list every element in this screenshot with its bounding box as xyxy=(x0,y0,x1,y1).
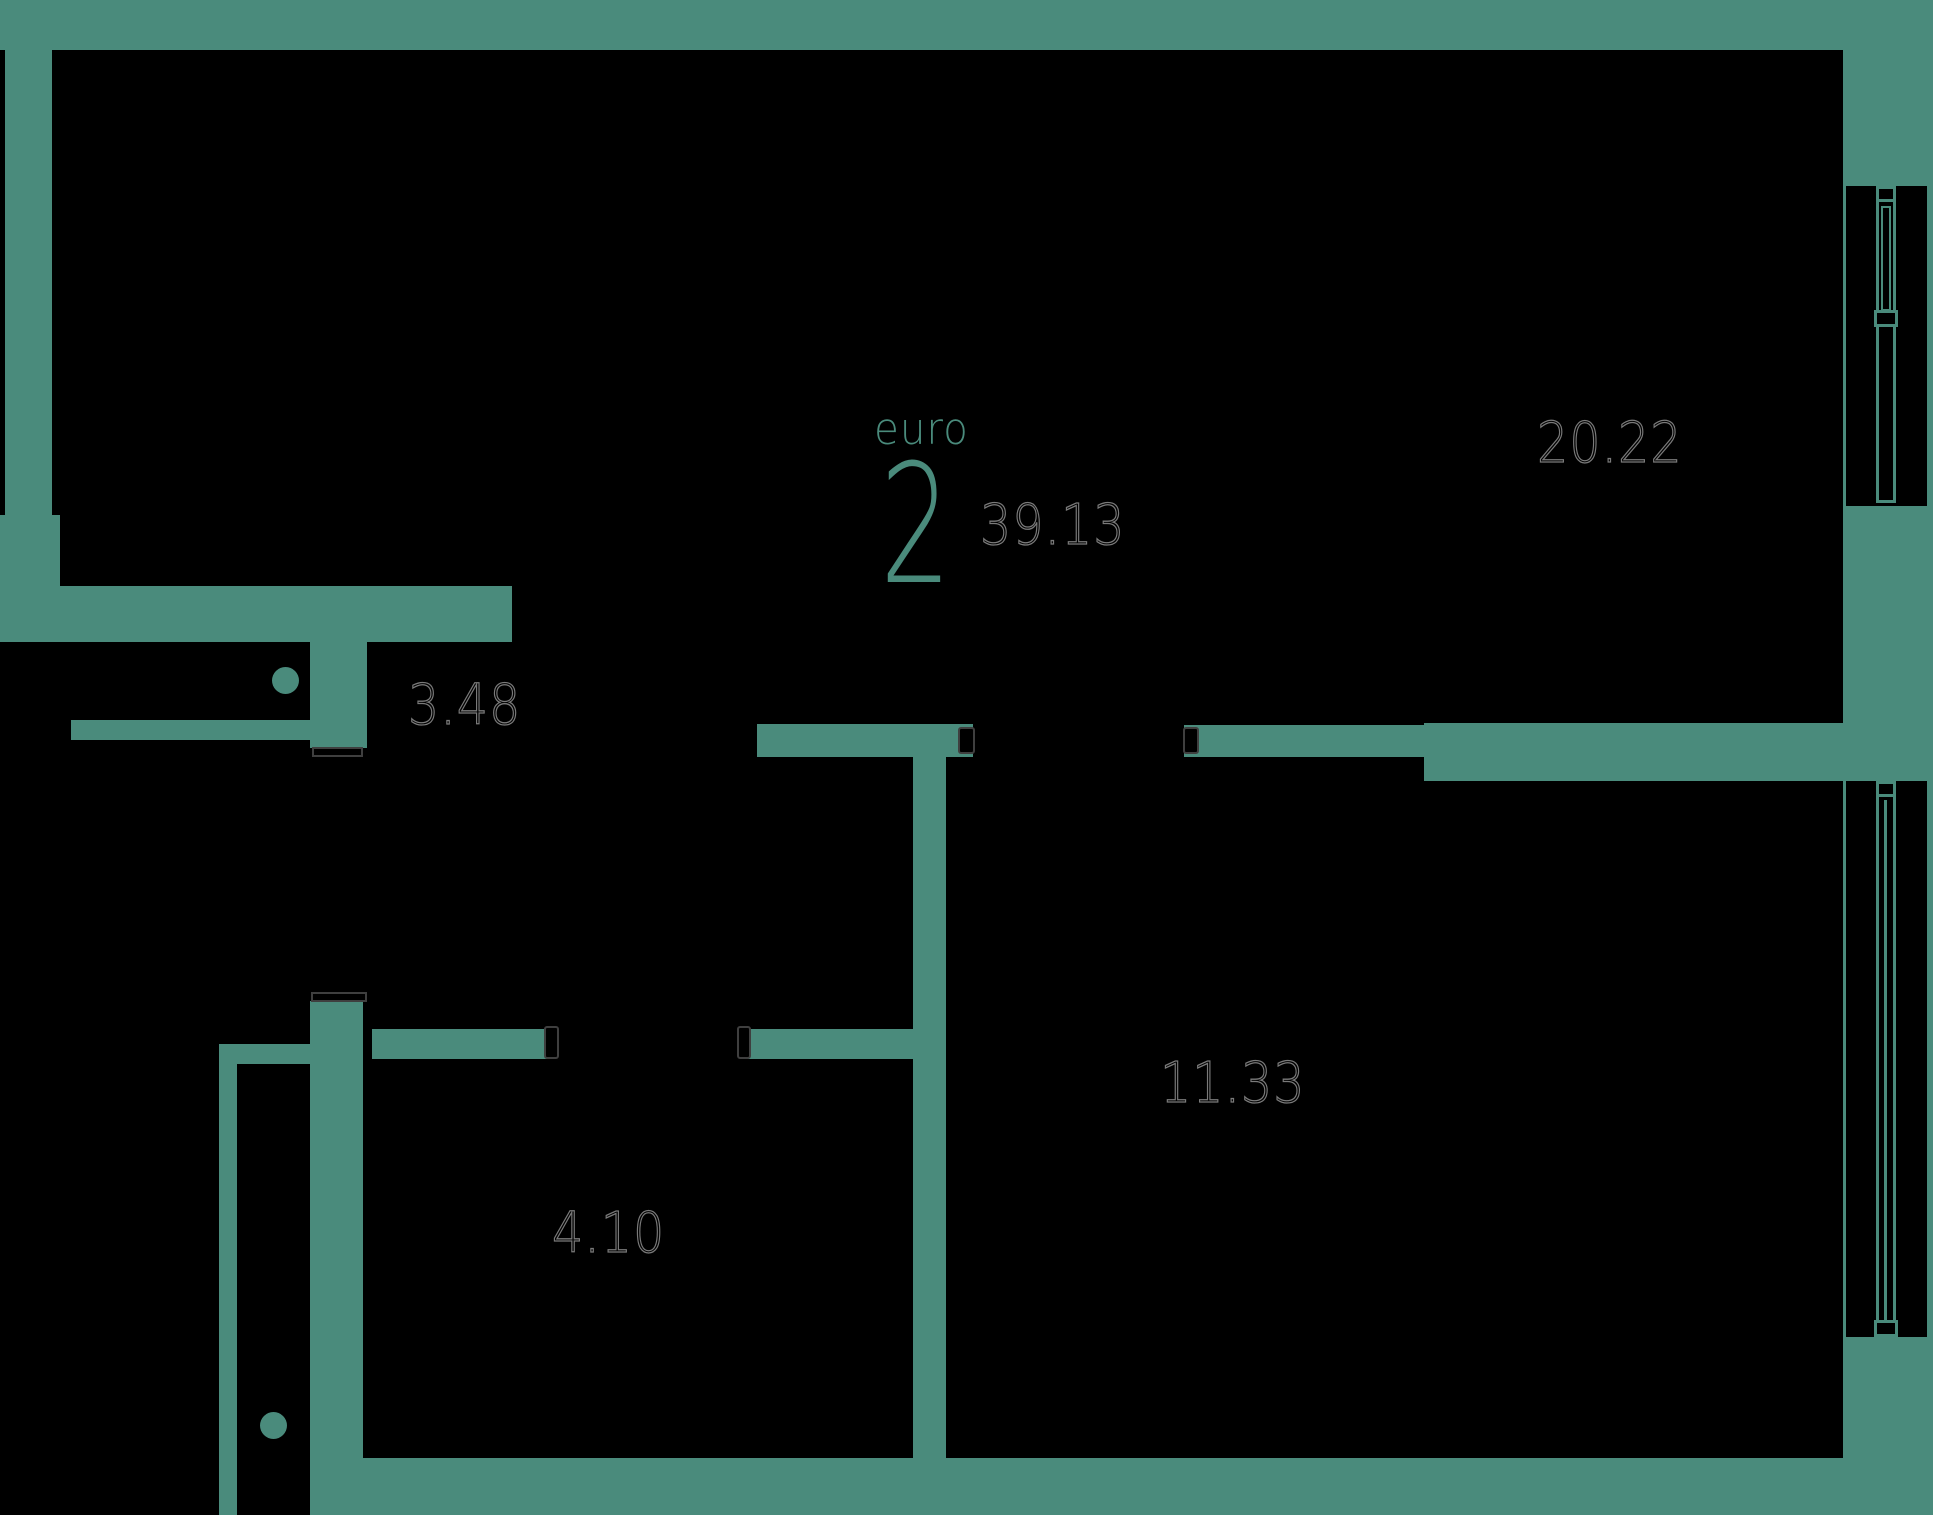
window-top-wall-face-line xyxy=(1843,186,1846,506)
room-area-label-living: 20.22 xyxy=(1537,416,1682,472)
room-area-label-bath: 4.10 xyxy=(552,1206,665,1262)
total-area-label: 39.13 xyxy=(980,498,1125,554)
window-bottom-wall-face-line xyxy=(1843,781,1846,1337)
window-top-sash xyxy=(1881,206,1891,311)
wall-right-thick-step xyxy=(1424,723,1933,781)
wall-center-stem xyxy=(913,755,946,1462)
window-top-divider-box xyxy=(1874,310,1898,327)
door-frame-bath-left xyxy=(544,1026,559,1059)
wall-hall-vertical-upper xyxy=(310,640,367,748)
wall-living-bottom-right xyxy=(1184,725,1424,757)
wall-entrance-vertical xyxy=(310,1001,363,1458)
door-leaf-hall xyxy=(312,747,363,757)
wall-bottom xyxy=(310,1458,1933,1515)
wall-top xyxy=(0,0,1933,50)
door-frame-bath-right xyxy=(737,1026,751,1059)
wall-left xyxy=(5,0,52,520)
door-frame-living-left xyxy=(958,727,975,754)
door-leaf-entrance xyxy=(311,992,367,1002)
wall-bath-top-left xyxy=(372,1029,552,1059)
wall-closet-vertical xyxy=(219,1044,237,1515)
wall-bath-top-right xyxy=(748,1029,916,1059)
door-handle-dot-lower xyxy=(260,1412,287,1439)
wall-left-lower-block xyxy=(0,515,60,590)
wall-band-horizontal xyxy=(0,586,512,642)
room-count-label: 2 xyxy=(880,443,951,608)
wall-right-upper xyxy=(1843,50,1933,186)
apartment-floor-plan: euro 2 39.13 20.22 3.48 11.33 4.10 xyxy=(0,0,1933,1515)
wall-wc-bottom xyxy=(71,720,310,740)
window-bottom-edge-strip xyxy=(1927,781,1933,1337)
room-area-label-hall: 3.48 xyxy=(408,678,521,734)
wall-right-lower xyxy=(1843,1337,1933,1458)
wall-right-middle xyxy=(1843,506,1933,723)
window-bottom-glass-line xyxy=(1884,800,1887,1320)
door-frame-living-right xyxy=(1183,727,1199,754)
window-top-edge-strip xyxy=(1927,186,1933,506)
window-bottom-sill-box xyxy=(1874,1320,1898,1337)
door-handle-dot-upper xyxy=(272,667,299,694)
room-area-label-bedroom: 11.33 xyxy=(1160,1056,1305,1112)
wall-living-bottom-left xyxy=(757,724,973,757)
